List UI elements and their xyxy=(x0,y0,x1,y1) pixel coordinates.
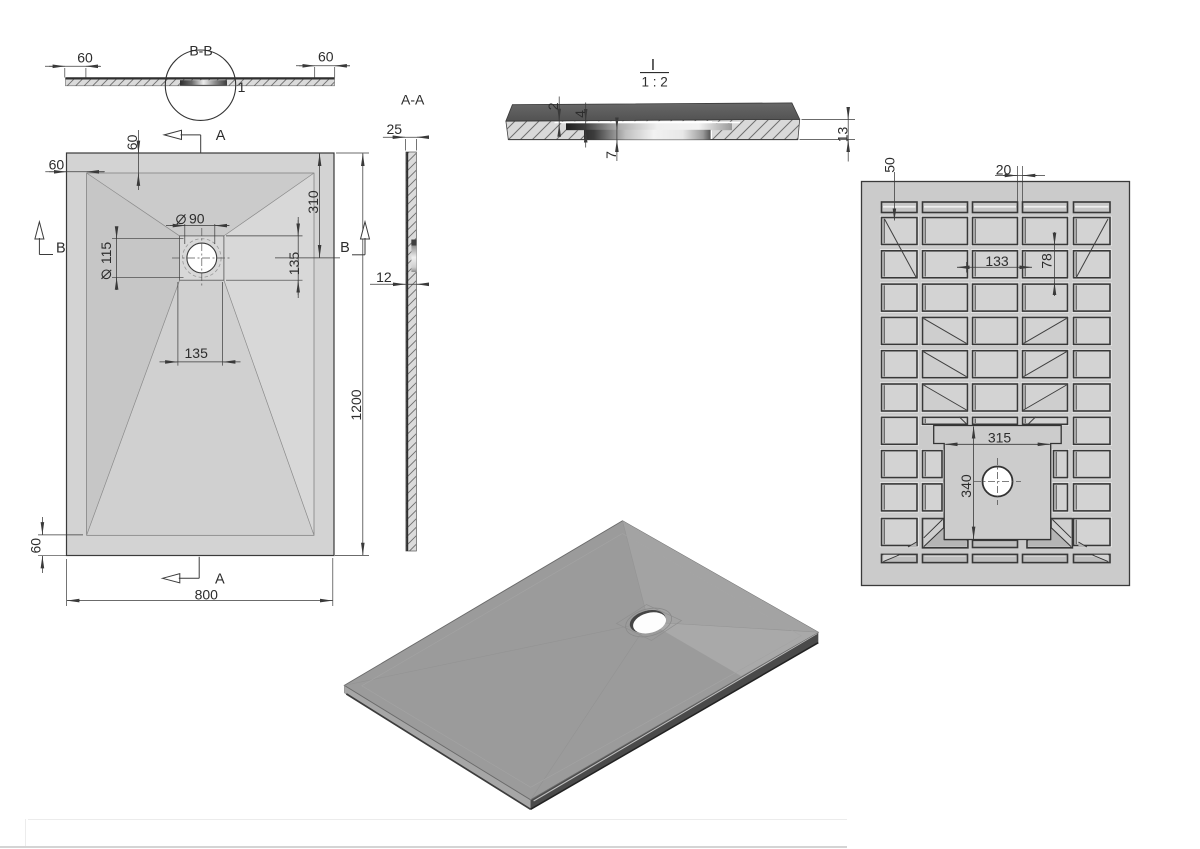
svg-text:115: 115 xyxy=(98,242,114,265)
svg-text:133: 133 xyxy=(985,253,1009,269)
svg-text:I: I xyxy=(651,57,655,74)
svg-text:60: 60 xyxy=(77,49,93,65)
svg-text:135: 135 xyxy=(286,252,302,276)
svg-text:13: 13 xyxy=(834,127,850,143)
svg-text:135: 135 xyxy=(185,345,209,361)
svg-text:A: A xyxy=(215,572,225,588)
svg-text:60: 60 xyxy=(27,538,43,554)
svg-text:90: 90 xyxy=(189,211,205,227)
svg-text:2: 2 xyxy=(545,102,561,110)
svg-text:A-A: A-A xyxy=(401,92,425,108)
svg-text:4: 4 xyxy=(572,110,588,118)
svg-text:78: 78 xyxy=(1038,253,1054,269)
svg-text:340: 340 xyxy=(958,474,974,498)
svg-text:60: 60 xyxy=(318,48,334,64)
svg-text:20: 20 xyxy=(996,162,1012,178)
svg-text:12: 12 xyxy=(376,269,392,285)
svg-text:B-B: B-B xyxy=(189,43,212,59)
svg-text:315: 315 xyxy=(988,429,1012,445)
svg-text:B: B xyxy=(340,240,350,256)
svg-text:1: 1 xyxy=(238,79,246,95)
svg-text:A: A xyxy=(216,128,226,144)
svg-text:800: 800 xyxy=(195,587,219,603)
svg-text:1200: 1200 xyxy=(348,389,364,420)
svg-text:1 : 2: 1 : 2 xyxy=(641,75,667,90)
svg-text:60: 60 xyxy=(49,156,65,172)
svg-text:60: 60 xyxy=(124,134,140,150)
svg-text:25: 25 xyxy=(387,121,403,137)
svg-text:310: 310 xyxy=(305,190,321,214)
svg-text:B: B xyxy=(56,240,66,256)
svg-text:7: 7 xyxy=(603,151,619,159)
svg-text:50: 50 xyxy=(881,157,897,173)
